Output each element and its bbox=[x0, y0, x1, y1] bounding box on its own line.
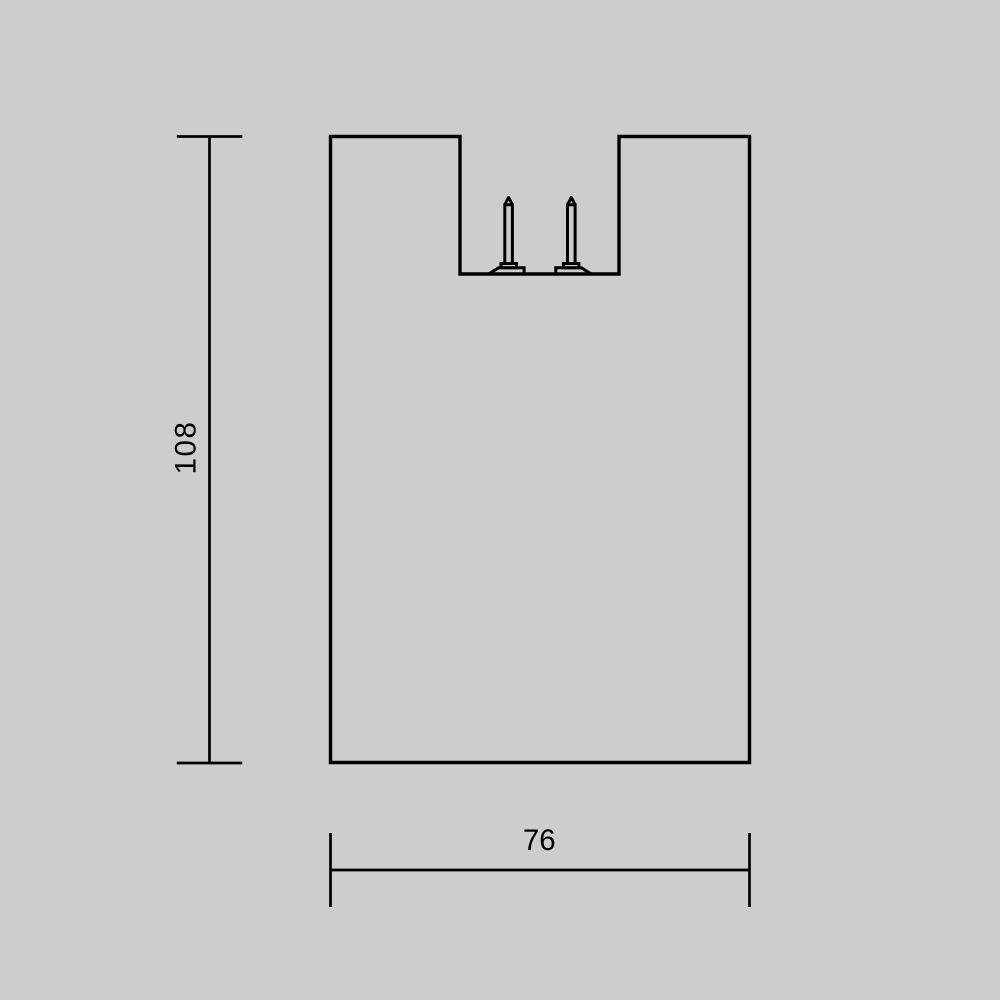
svg-text:76: 76 bbox=[523, 824, 556, 857]
svg-text:108: 108 bbox=[169, 421, 202, 475]
